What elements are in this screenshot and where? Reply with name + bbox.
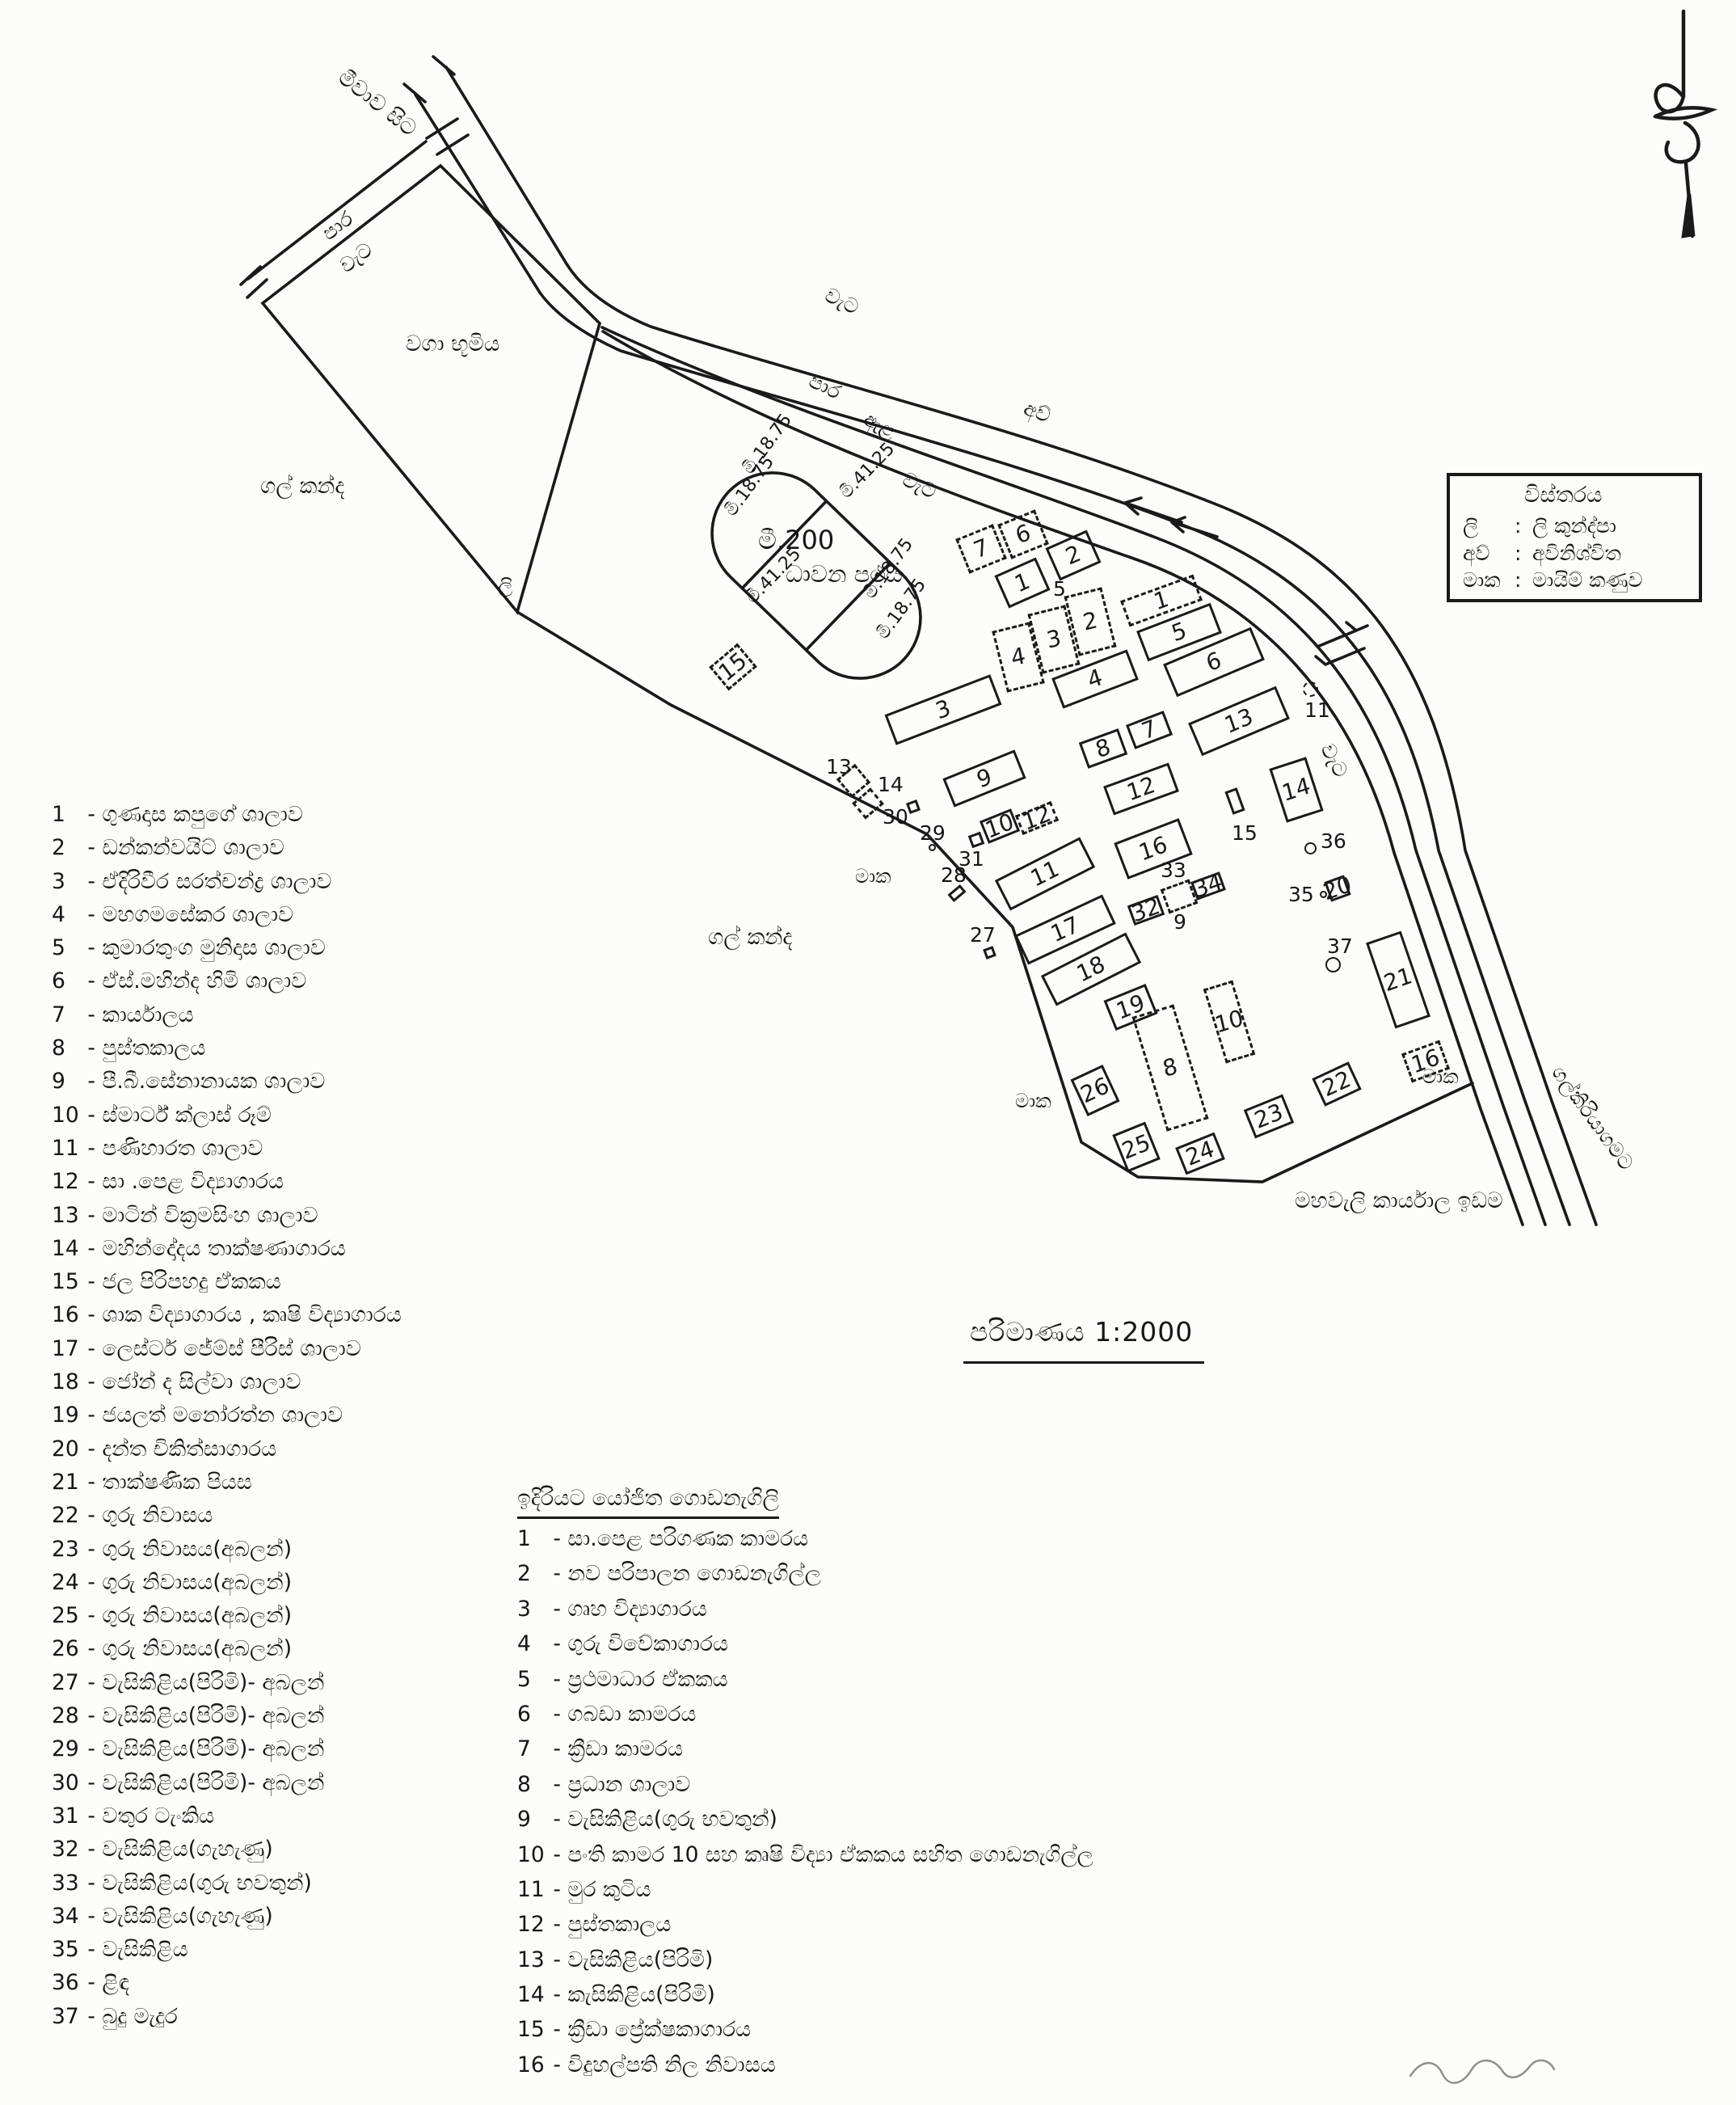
list-item-dash: -	[81, 1537, 102, 1562]
list-item-number: 2	[517, 1561, 546, 1586]
list-item-number: 8	[517, 1772, 546, 1797]
list-item-dash: -	[81, 1703, 102, 1728]
list-item-label: මාටින් වික්‍රමසිංහ ශාලාව	[102, 1203, 318, 1228]
list-item-label: පුස්තකාලය	[567, 1912, 671, 1937]
list-item: 12 - පුස්තකාලය	[517, 1912, 1093, 1947]
list-item-number: 31	[52, 1803, 81, 1829]
list-item-label: ගුරු නිවාසය(අබලන්)	[102, 1603, 292, 1628]
building-number: 11	[1028, 857, 1063, 891]
building-number: 1	[1152, 587, 1171, 614]
map-symbol	[1304, 842, 1317, 854]
building-number: 14	[1280, 774, 1313, 805]
map-number-label: 29	[920, 823, 946, 843]
list-item-dash: -	[81, 802, 102, 827]
list-item-dash: -	[81, 1871, 102, 1896]
list-item-dash: -	[81, 1803, 102, 1829]
list-item-number: 12	[52, 1169, 81, 1194]
list-item-label: කැසිකිළිය(පිරිමි)	[567, 1982, 714, 2007]
building-number: 18	[1074, 952, 1109, 986]
list-item-number: 15	[517, 2017, 546, 2042]
building-number: 17	[1048, 913, 1082, 946]
list-item-label: වැසිකිළිය(ගුරු භවතුන්)	[102, 1871, 311, 1896]
list-item-dash: -	[81, 2004, 102, 2029]
list-item-label: නව පරිපාලන ගොඩනැගිල්ල	[567, 1561, 820, 1586]
list-item-label: පී.බී.සේනානායක ශාලාව	[102, 1069, 325, 1094]
building-number: 3	[933, 696, 954, 723]
list-item-number: 14	[52, 1236, 81, 1261]
scale-label: පරිමාණය 1:2000	[963, 1316, 1204, 1364]
list-item-dash: -	[81, 1103, 102, 1128]
list-item-dash: -	[81, 869, 102, 894]
building-number: 2	[1063, 542, 1084, 569]
list-item: 9 - වැසිකිළිය(ගුරු භවතුන්)	[517, 1807, 1093, 1841]
building-number: 9	[974, 765, 994, 791]
list-item-dash: -	[81, 1136, 102, 1161]
list-item-dash: -	[81, 1403, 102, 1428]
list-item-number: 14	[517, 1982, 546, 2007]
list-item-number: 16	[52, 1302, 81, 1327]
list-item: 19 - ජයලත් මනෝරත්න ශාලාව	[52, 1403, 402, 1436]
map-text-label: ගල් කන්ද	[260, 475, 344, 497]
list-item-label: ඒස්.මහින්ද හිමි ශාලාව	[102, 968, 306, 993]
list-item: 16 - ශාක විද්‍යාගාරය , කෘෂි විද්‍යාගාරය	[52, 1302, 402, 1335]
legend-symbol: අව්	[1463, 542, 1515, 565]
list-item-number: 37	[52, 2004, 81, 2029]
building-number: 2	[1081, 609, 1099, 635]
list-item-number: 32	[52, 1837, 81, 1862]
legend-colon: :	[1515, 542, 1532, 565]
list-item-dash: -	[81, 1369, 102, 1394]
list-item-dash: -	[81, 1269, 102, 1294]
list-item-dash: -	[546, 1561, 567, 1586]
list-item: 7 - කාර්යාලය	[52, 1002, 402, 1036]
map-number-label: 5	[1053, 579, 1066, 599]
list-item-dash: -	[81, 1970, 102, 1995]
list-item-number: 17	[52, 1336, 81, 1361]
proposed-buildings-list: 1 - සා.පෙළ පරිගණක කාමරය 2 - නව පරිපාලන ග…	[517, 1526, 1093, 2087]
list-item-label: ගබඩා කාමරය	[567, 1702, 696, 1727]
list-item-label: ජෝන් ද සිල්වා ශාලාව	[102, 1369, 301, 1394]
list-item-label: වැසිකිළිය(ගැහැණු)	[102, 1904, 272, 1929]
map-number-label: 30	[883, 807, 908, 827]
map-symbol	[929, 844, 936, 851]
map-symbol	[1320, 891, 1327, 898]
list-item: 6 - ඒස්.මහින්ද හිමි ශාලාව	[52, 968, 402, 1002]
list-item-label: ගෘහ විද්‍යාගාරය	[567, 1597, 706, 1622]
list-item-label: වැසිකිළිය(පිරිමි)- අබලන්	[102, 1703, 324, 1728]
list-item: 6 - ගබඩා කාමරය	[517, 1702, 1093, 1736]
building-number: 8	[1093, 735, 1113, 761]
list-item-label: ගුරු නිවාසය(අබලන්)	[102, 1537, 292, 1562]
list-item: 34 - වැසිකිළිය(ගැහැණු)	[52, 1904, 402, 1937]
building-number: 3	[1045, 626, 1063, 652]
map-number-label: 9	[1173, 912, 1186, 932]
list-item-label: සා.පෙළ පරිගණක කාමරය	[567, 1526, 808, 1551]
list-item-dash: -	[546, 2052, 567, 2078]
map-number-label: 37	[1327, 936, 1353, 956]
list-item-label: ප්‍රධාන ශාලාව	[567, 1772, 690, 1797]
list-item: 14 - මහින්දෝදය තාක්ෂණාගාරය	[52, 1236, 402, 1269]
list-item-label: පණිහාරත ශාලාව	[102, 1136, 263, 1161]
list-item-number: 8	[52, 1036, 81, 1061]
list-item-number: 20	[52, 1436, 81, 1462]
list-item-number: 9	[517, 1807, 546, 1832]
list-item-label: වැසිකිළිය(ගුරු භවතුන්)	[567, 1807, 777, 1832]
list-item-label: වැසිකිළිය	[102, 1937, 188, 1962]
list-item-number: 35	[52, 1937, 81, 1962]
list-item-number: 19	[52, 1403, 81, 1428]
list-item: 18 - ජෝන් ද සිල්වා ශාලාව	[52, 1369, 402, 1403]
map-text-label: ලි	[498, 576, 512, 595]
list-item-number: 4	[52, 902, 81, 927]
list-item-number: 24	[52, 1570, 81, 1595]
list-item-dash: -	[546, 1631, 567, 1656]
list-item: 26 - ගුරු නිවාසය(අබලන්)	[52, 1636, 402, 1669]
building-number: 6	[1203, 648, 1224, 676]
list-item: 9 - පී.බී.සේනානායක ශාලාව	[52, 1069, 402, 1102]
list-item-label: ගුරු නිවාසය(අබලන්)	[102, 1636, 292, 1661]
list-item-dash: -	[81, 1503, 102, 1528]
scale-text: පරිමාණය 1:2000	[970, 1316, 1193, 1348]
list-item-number: 36	[52, 1970, 81, 1995]
list-item-label: තාක්ෂණික පියස	[102, 1470, 251, 1495]
list-item-label: වැසිකිළිය(පිරිමි)	[567, 1947, 713, 1972]
list-item-dash: -	[546, 1736, 567, 1761]
list-item: 23 - ගුරු නිවාසය(අබලන්)	[52, 1537, 402, 1570]
legend-colon: :	[1515, 515, 1532, 538]
building-number: 7	[971, 535, 991, 562]
map-text-label: මාක	[1422, 1067, 1459, 1086]
list-item: 17 - ලෙස්ටර් ජේම්ස් පීරිස් ශාලාව	[52, 1336, 402, 1369]
map-text-label: ගල් කන්ද	[708, 926, 792, 948]
list-item-label: වැසිකිළිය(පිරිමි)- අබලන්	[102, 1770, 324, 1795]
list-item: 2 - නව පරිපාලන ගොඩනැගිල්ල	[517, 1561, 1093, 1596]
list-item: 12 - සා .පෙළ විද්‍යාගාරය	[52, 1169, 402, 1202]
list-item-dash: -	[546, 1877, 567, 1902]
site-plan-page: 1 2 5 4 6 3 7	[0, 0, 1736, 2105]
list-item: 29 - වැසිකිළිය(පිරිමි)- අබලන්	[52, 1736, 402, 1770]
list-item: 36 - ළිඳ	[52, 1970, 402, 2003]
list-item-dash: -	[81, 1203, 102, 1228]
legend-symbol: මාක	[1463, 569, 1515, 592]
map-number-label: 11	[1304, 700, 1330, 720]
list-item-number: 5	[517, 1667, 546, 1692]
map-symbol	[1303, 681, 1318, 697]
legend-rows: ලි : ලි කුන්ද්පා අව් : අවිනිශ්විත මාක : …	[1463, 515, 1689, 592]
map-number-label: 36	[1321, 831, 1346, 851]
list-item-number: 13	[517, 1947, 546, 1972]
list-item-dash: -	[81, 1036, 102, 1061]
list-item-dash: -	[546, 1807, 567, 1832]
list-item-number: 23	[52, 1537, 81, 1562]
list-item-number: 1	[52, 802, 81, 827]
list-item-dash: -	[546, 1702, 567, 1727]
list-item-dash: -	[81, 1904, 102, 1929]
building: 20	[1324, 875, 1350, 901]
list-item-number: 34	[52, 1904, 81, 1929]
map-number-label: 33	[1161, 860, 1186, 880]
list-item: 4 - මහගමසේකර ශාලාව	[52, 902, 402, 935]
legend-colon: :	[1515, 569, 1532, 592]
list-item-dash: -	[81, 1236, 102, 1261]
list-item-label: වැසිකිළිය(පිරිමි)- අබලන්	[102, 1736, 324, 1761]
list-item: 33 - වැසිකිළිය(ගුරු භවතුන්)	[52, 1871, 402, 1904]
list-item-label: ගුරු නිවාසය	[102, 1503, 213, 1528]
list-item: 13 - මාටින් වික්‍රමසිංහ ශාලාව	[52, 1203, 402, 1236]
list-item-label: පංති කාමර 10 සහ කෘෂි විද්‍යා ඒකකය සහිත ග…	[567, 1842, 1093, 1867]
building-number: 6	[1013, 521, 1033, 547]
list-item-number: 7	[52, 1002, 81, 1027]
list-item-dash: -	[81, 1636, 102, 1661]
list-item-number: 6	[517, 1702, 546, 1727]
list-item-number: 27	[52, 1670, 81, 1695]
legend-description: ලි කුන්ද්පා	[1532, 515, 1616, 538]
list-item-number: 29	[52, 1736, 81, 1761]
list-item-dash: -	[81, 1603, 102, 1628]
list-item-number: 5	[52, 935, 81, 960]
list-item-label: ක්‍රීඩා කාමරය	[567, 1736, 683, 1761]
list-item-number: 3	[517, 1597, 546, 1622]
list-item-number: 6	[52, 968, 81, 993]
map-symbol	[1325, 957, 1341, 972]
list-item-dash: -	[546, 1526, 567, 1551]
list-item: 1 - සා.පෙළ පරිගණක කාමරය	[517, 1526, 1093, 1561]
legend-box: විස්තරය ලි : ලි කුන්ද්පා අව් : අවිනිශ්වි…	[1447, 473, 1702, 602]
list-item: 5 - ප්‍රථමාධාර ඒකකය	[517, 1667, 1093, 1702]
list-item-dash: -	[81, 1570, 102, 1595]
list-item-dash: -	[546, 1912, 567, 1937]
list-item-dash: -	[81, 902, 102, 927]
list-item-number: 10	[52, 1103, 81, 1128]
list-item-dash: -	[81, 1770, 102, 1795]
list-item-dash: -	[546, 2017, 567, 2042]
list-item-number: 9	[52, 1069, 81, 1094]
map-number-label: 13	[826, 757, 852, 777]
building-number: 12	[1124, 773, 1157, 804]
list-item-dash: -	[81, 1837, 102, 1862]
building-number: 21	[1382, 964, 1415, 996]
list-item: 30 - වැසිකිළිය(පිරිමි)- අබලන්	[52, 1770, 402, 1803]
list-item-number: 28	[52, 1703, 81, 1728]
list-item-label: මහින්දෝදය තාක්ෂණාගාරය	[102, 1236, 345, 1261]
list-item: 13 - වැසිකිළිය(පිරිමි)	[517, 1947, 1093, 1982]
list-item-label: සා .පෙළ විද්‍යාගාරය	[102, 1169, 284, 1194]
list-item-dash: -	[81, 968, 102, 993]
map-text-label: මහවැලි කාර්යාල ඉඩම	[1295, 1190, 1503, 1212]
list-item-label: පුස්තකාලය	[102, 1036, 205, 1061]
building-number: 7	[1140, 716, 1160, 743]
list-item: 11 - මුර කුටිය	[517, 1877, 1093, 1912]
map-number-label: 35	[1288, 884, 1314, 905]
list-item-number: 3	[52, 869, 81, 894]
list-item: 15 - ජල පිරිපහදු ඒකකය	[52, 1269, 402, 1302]
list-item-label: මහගමසේකර ශාලාව	[102, 902, 293, 927]
list-item-dash: -	[546, 1947, 567, 1972]
list-item-dash: -	[81, 1670, 102, 1695]
list-item: 35 - වැසිකිළිය	[52, 1937, 402, 1970]
list-item-number: 12	[517, 1912, 546, 1937]
map-text-label: මාක	[855, 867, 891, 886]
proposed-buildings-title: ඉදිරියට යෝජිත ගොඩනැගිලි	[517, 1486, 779, 1519]
building-number: 1	[1012, 569, 1033, 597]
list-item-number: 11	[517, 1877, 546, 1902]
legend-row: මාක : මායිම් කණුව	[1463, 569, 1689, 592]
list-item: 15 - ක්‍රීඩා ප්‍රේක්ෂකාගාරය	[517, 2017, 1093, 2052]
list-item-number: 1	[517, 1526, 546, 1551]
legend-description: මායිම් කණුව	[1532, 569, 1642, 592]
list-item-dash: -	[546, 1667, 567, 1692]
list-item: 37 - බුදු මැදුර	[52, 2004, 402, 2037]
list-item-dash: -	[81, 1937, 102, 1962]
list-item-label: විදුහල්පති නිල නිවාසය	[567, 2052, 775, 2078]
list-item-number: 33	[52, 1871, 81, 1896]
list-item-label: ගුණදාස කපුගේ ශාලාව	[102, 802, 302, 827]
list-item-label: කුමාරතුංග මුනිදාස ශාලාව	[102, 935, 325, 960]
list-item-label: ජල පිරිපහදු ඒකකය	[102, 1269, 280, 1294]
list-item-label: ලෙස්ටර් ජේම්ස් පීරිස් ශාලාව	[102, 1336, 360, 1361]
list-item-dash: -	[546, 1597, 567, 1622]
list-item-label: මුර කුටිය	[567, 1877, 651, 1902]
list-item: 16 - විදුහල්පති නිල නිවාසය	[517, 2052, 1093, 2087]
list-item-number: 30	[52, 1770, 81, 1795]
list-item-number: 15	[52, 1269, 81, 1294]
building-number: 4	[1009, 644, 1027, 670]
list-item: 25 - ගුරු නිවාසය(අබලන්)	[52, 1603, 402, 1636]
legend-title: විස්තරය	[1463, 483, 1689, 508]
list-item-number: 13	[52, 1203, 81, 1228]
list-item: 27 - වැසිකිළිය(පිරිමි)- අබලන්	[52, 1670, 402, 1703]
list-item: 4 - ගුරු විවේකාගාරය	[517, 1631, 1093, 1666]
list-item-number: 25	[52, 1603, 81, 1628]
list-item-number: 18	[52, 1369, 81, 1394]
building-number: 23	[1252, 1100, 1286, 1133]
map-number-label: 27	[970, 925, 996, 945]
list-item-dash: -	[81, 1436, 102, 1462]
list-item: 10 - ස්මාර්ට් ක්ලාස් රූම්	[52, 1103, 402, 1136]
list-item-number: 7	[517, 1736, 546, 1761]
existing-buildings-list: 1 - ගුණදාස කපුගේ ශාලාව 2 - ඩන්කන්වයිට් ශ…	[52, 802, 402, 2037]
building-number: 26	[1078, 1074, 1112, 1107]
list-item-number: 22	[52, 1503, 81, 1528]
list-item: 14 - කැසිකිළිය(පිරිමි)	[517, 1982, 1093, 2017]
list-item-dash: -	[81, 835, 102, 860]
list-item-number: 2	[52, 835, 81, 860]
list-item: 2 - ඩන්කන්වයිට් ශාලාව	[52, 835, 402, 868]
list-item: 8 - පුස්තකාලය	[52, 1036, 402, 1069]
building-number: 10	[1213, 1006, 1245, 1037]
list-item-label: ක්‍රීඩා ප්‍රේක්ෂකාගාරය	[567, 2017, 751, 2042]
list-item-number: 26	[52, 1636, 81, 1661]
list-item-number: 10	[517, 1842, 546, 1867]
list-item-label: ගුරු විවේකාගාරය	[567, 1631, 728, 1656]
list-item: 20 - දන්ත චිකිත්සාගාරය	[52, 1436, 402, 1470]
list-item-label: ශාක විද්‍යාගාරය , කෘෂි විද්‍යාගාරය	[102, 1302, 401, 1327]
list-item-dash: -	[81, 935, 102, 960]
list-item: 7 - ක්‍රීඩා කාමරය	[517, 1736, 1093, 1771]
list-item: 5 - කුමාරතුංග මුනිදාස ශාලාව	[52, 935, 402, 968]
list-item-number: 4	[517, 1631, 546, 1656]
list-item-label: කාර්යාලය	[102, 1002, 193, 1027]
list-item: 1 - ගුණදාස කපුගේ ශාලාව	[52, 802, 402, 835]
building-number: 13	[1222, 705, 1256, 737]
map-number-label: 15	[1232, 823, 1258, 843]
list-item: 21 - තාක්ෂණික පියස	[52, 1470, 402, 1503]
legend-symbol: ලි	[1463, 515, 1515, 538]
list-item-label: වතුර ටැංකිය	[102, 1803, 214, 1829]
list-item-label: දන්ත චිකිත්සාගාරය	[102, 1436, 276, 1462]
legend-row: ලි : ලි කුන්ද්පා	[1463, 515, 1689, 538]
list-item-dash: -	[81, 1336, 102, 1361]
list-item: 28 - වැසිකිළිය(පිරිමි)- අබලන්	[52, 1703, 402, 1736]
building-number: 5	[1169, 618, 1190, 645]
list-item-label: ප්‍රථමාධාර ඒකකය	[567, 1667, 727, 1692]
list-item-dash: -	[546, 1772, 567, 1797]
list-item-number: 11	[52, 1136, 81, 1161]
list-item-label: ඒදිරිවීර සරත්චන්ද්‍ර ශාලාව	[102, 869, 331, 894]
list-item-dash: -	[81, 1736, 102, 1761]
list-item-label: වැසිකිළිය(පිරිමි)- අබලන්	[102, 1670, 324, 1695]
list-item: 24 - ගුරු නිවාසය(අබලන්)	[52, 1570, 402, 1603]
list-item: 32 - වැසිකිළිය(ගැහැණු)	[52, 1837, 402, 1870]
list-item-dash: -	[81, 1069, 102, 1094]
list-item-label: ළිඳ	[102, 1970, 129, 1995]
list-item: 11 - පණිහාරත ශාලාව	[52, 1136, 402, 1169]
list-item-number: 16	[517, 2052, 546, 2078]
map-number-label: 14	[878, 774, 904, 795]
list-item-label: ගුරු නිවාසය(අබලන්)	[102, 1570, 292, 1595]
list-item: 31 - වතුර ටැංකිය	[52, 1803, 402, 1837]
list-item-dash: -	[81, 1302, 102, 1327]
list-item-label: වැසිකිළිය(ගැහැණු)	[102, 1837, 272, 1862]
list-item-number: 21	[52, 1470, 81, 1495]
list-item: 10 - පංති කාමර 10 සහ කෘෂි විද්‍යා ඒකකය ස…	[517, 1842, 1093, 1877]
list-item-label: ස්මාර්ට් ක්ලාස් රූම්	[102, 1103, 271, 1128]
building-number: 4	[1085, 665, 1106, 692]
list-item: 8 - ප්‍රධාන ශාලාව	[517, 1772, 1093, 1807]
list-item: 3 - ඒදිරිවීර සරත්චන්ද්‍ර ශාලාව	[52, 869, 402, 902]
list-item: 3 - ගෘහ විද්‍යාගාරය	[517, 1597, 1093, 1631]
list-item-label: බුදු මැදුර	[102, 2004, 177, 2029]
map-number-label: 28	[941, 865, 967, 885]
building-number: 8	[1161, 1055, 1179, 1082]
list-item-label: ජයලත් මනෝරත්න ශාලාව	[102, 1403, 343, 1428]
building-number: 25	[1119, 1131, 1153, 1163]
list-item-dash: -	[546, 1982, 567, 2007]
list-item-label: ඩන්කන්වයිට් ශාලාව	[102, 835, 284, 860]
legend-description: අවිනිශ්විත	[1532, 542, 1621, 565]
legend-row: අව් : අවිනිශ්විත	[1463, 542, 1689, 565]
map-text-label: මාක	[1015, 1091, 1051, 1111]
list-item-dash: -	[81, 1002, 102, 1027]
list-item: 22 - ගුරු නිවාසය	[52, 1503, 402, 1536]
list-item-dash: -	[546, 1842, 567, 1867]
list-item-dash: -	[81, 1169, 102, 1194]
map-text-label: වගා භූමිය	[406, 333, 499, 355]
list-item-dash: -	[81, 1470, 102, 1495]
